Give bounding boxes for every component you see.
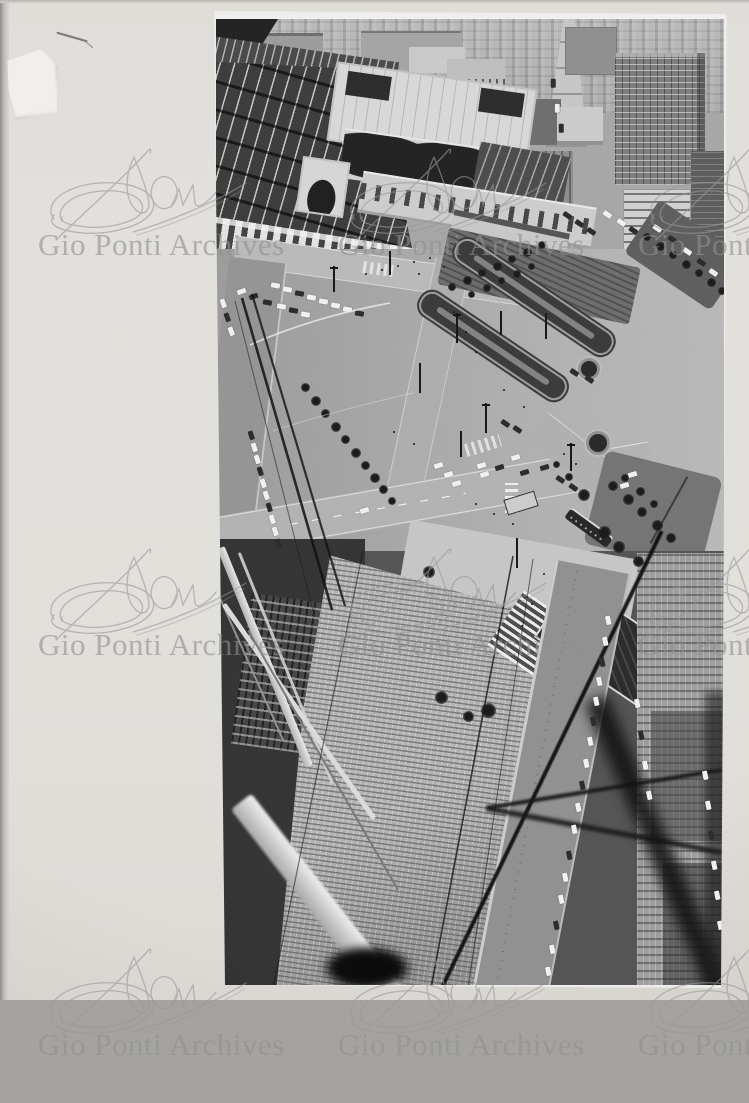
mat-corner-chip: [5, 47, 64, 120]
aerial-photograph: [213, 11, 727, 988]
mat-scratch-mark: [56, 32, 87, 43]
mat-scratch-mark-small: [85, 41, 93, 48]
lane-curve-marking: [250, 303, 390, 345]
watermark-text: Gio Ponti Archives: [638, 1027, 749, 1063]
watermark-text: Gio Ponti Archives: [38, 1027, 285, 1063]
foreground-wire: [252, 294, 345, 606]
foreground-wire: [273, 551, 363, 988]
line-overlay: [213, 11, 727, 988]
watermark-text: Gio Ponti Archives: [338, 1027, 585, 1063]
lane-curve-marking: [273, 393, 413, 431]
foreground-wire: [242, 298, 332, 610]
mat-top-edge: [0, 0, 749, 3]
mat-left-edge: [0, 0, 9, 1000]
